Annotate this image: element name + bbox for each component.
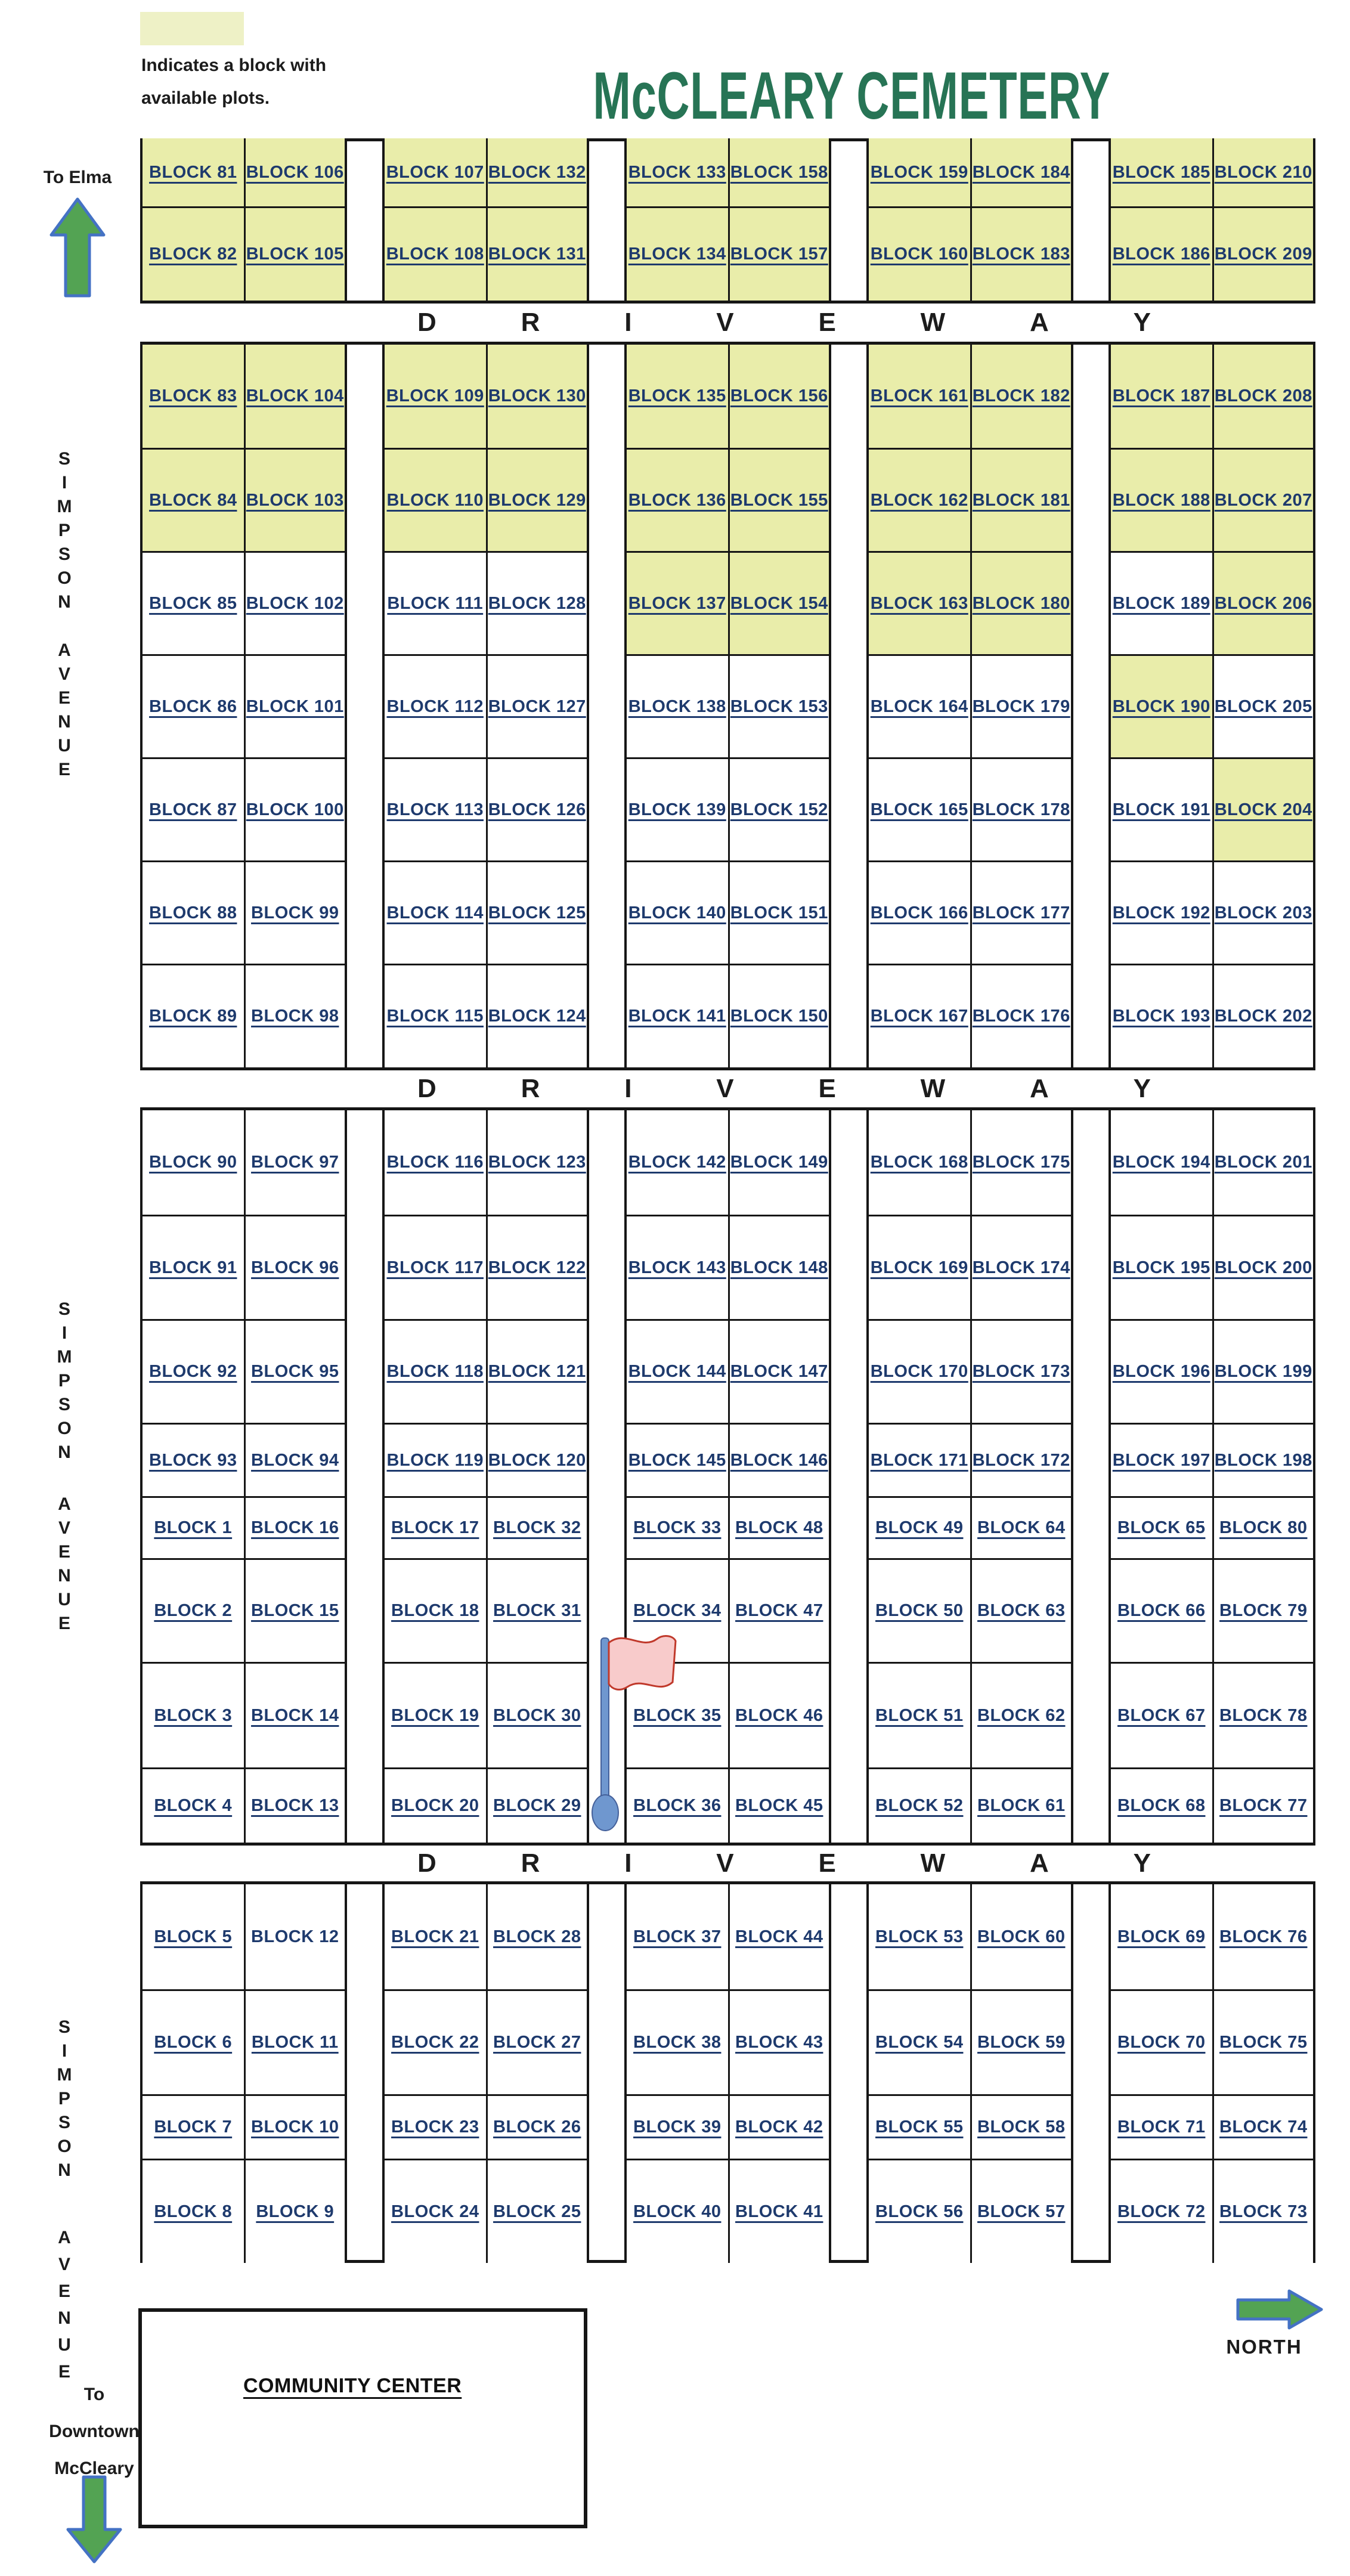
block-cell-55[interactable]: BLOCK 55 bbox=[869, 2094, 970, 2159]
block-cell-64[interactable]: BLOCK 64 bbox=[970, 1496, 1072, 1558]
block-cell-105[interactable]: BLOCK 105 bbox=[244, 206, 345, 301]
block-label-101: BLOCK 101 bbox=[246, 697, 344, 717]
block-cell-122[interactable]: BLOCK 122 bbox=[486, 1215, 587, 1319]
block-cell-38[interactable]: BLOCK 38 bbox=[627, 1989, 728, 2094]
block-cell-148[interactable]: BLOCK 148 bbox=[728, 1215, 829, 1319]
block-cell-190[interactable]: BLOCK 190 bbox=[1111, 654, 1212, 757]
block-label-61: BLOCK 61 bbox=[977, 1796, 1065, 1816]
block-label-180: BLOCK 180 bbox=[973, 594, 1070, 614]
block-cell-18[interactable]: BLOCK 18 bbox=[385, 1558, 486, 1662]
block-cell-193[interactable]: BLOCK 193 bbox=[1111, 964, 1212, 1067]
block-cell-187[interactable]: BLOCK 187 bbox=[1111, 345, 1212, 448]
block-cell-201[interactable]: BLOCK 201 bbox=[1212, 1110, 1314, 1215]
block-cell-90[interactable]: BLOCK 90 bbox=[143, 1110, 244, 1215]
block-cell-113[interactable]: BLOCK 113 bbox=[385, 757, 486, 860]
block-cell-76[interactable]: BLOCK 76 bbox=[1212, 1884, 1314, 1989]
block-cell-195[interactable]: BLOCK 195 bbox=[1111, 1215, 1212, 1319]
block-cell-89[interactable]: BLOCK 89 bbox=[143, 964, 244, 1067]
block-label-152: BLOCK 152 bbox=[730, 800, 828, 820]
block-label-201: BLOCK 201 bbox=[1215, 1153, 1312, 1172]
block-cell-28[interactable]: BLOCK 28 bbox=[486, 1884, 587, 1989]
block-cell-110[interactable]: BLOCK 110 bbox=[385, 448, 486, 551]
block-cell-177[interactable]: BLOCK 177 bbox=[970, 860, 1072, 964]
street-label-simpson-2: SIMPSON bbox=[51, 1298, 78, 1465]
block-cell-163[interactable]: BLOCK 163 bbox=[869, 551, 970, 654]
block-cell-205[interactable]: BLOCK 205 bbox=[1212, 654, 1314, 757]
block-cell-19[interactable]: BLOCK 19 bbox=[385, 1662, 486, 1767]
block-cell-174[interactable]: BLOCK 174 bbox=[970, 1215, 1072, 1319]
street-letter: P bbox=[51, 2087, 78, 2111]
block-cell-134[interactable]: BLOCK 134 bbox=[627, 206, 728, 301]
block-cell-200[interactable]: BLOCK 200 bbox=[1212, 1215, 1314, 1319]
street-letter: S bbox=[51, 1393, 78, 1417]
block-cell-17[interactable]: BLOCK 17 bbox=[385, 1496, 486, 1558]
block-label-82: BLOCK 82 bbox=[149, 244, 237, 264]
block-label-38: BLOCK 38 bbox=[633, 2033, 721, 2052]
block-cell-144[interactable]: BLOCK 144 bbox=[627, 1319, 728, 1423]
block-cell-16[interactable]: BLOCK 16 bbox=[244, 1496, 345, 1558]
block-cell-140[interactable]: BLOCK 140 bbox=[627, 860, 728, 964]
block-cell-143[interactable]: BLOCK 143 bbox=[627, 1215, 728, 1319]
block-cell-46[interactable]: BLOCK 46 bbox=[728, 1662, 829, 1767]
block-label-8: BLOCK 8 bbox=[154, 2202, 232, 2222]
block-label-105: BLOCK 105 bbox=[246, 244, 344, 264]
block-cell-33[interactable]: BLOCK 33 bbox=[627, 1496, 728, 1558]
block-label-17: BLOCK 17 bbox=[391, 1518, 479, 1538]
section-upper-middle-group-2: BLOCK 109BLOCK 130BLOCK 110BLOCK 129BLOC… bbox=[382, 345, 589, 1067]
block-cell-99[interactable]: BLOCK 99 bbox=[244, 860, 345, 964]
block-cell-171[interactable]: BLOCK 171 bbox=[869, 1423, 970, 1496]
block-cell-81[interactable]: BLOCK 81 bbox=[143, 138, 244, 206]
block-cell-145[interactable]: BLOCK 145 bbox=[627, 1423, 728, 1496]
block-cell-11[interactable]: BLOCK 11 bbox=[244, 1989, 345, 2094]
block-cell-30[interactable]: BLOCK 30 bbox=[486, 1662, 587, 1767]
block-cell-97[interactable]: BLOCK 97 bbox=[244, 1110, 345, 1215]
block-cell-94[interactable]: BLOCK 94 bbox=[244, 1423, 345, 1496]
block-cell-68[interactable]: BLOCK 68 bbox=[1111, 1767, 1212, 1843]
block-cell-170[interactable]: BLOCK 170 bbox=[869, 1319, 970, 1423]
block-cell-10[interactable]: BLOCK 10 bbox=[244, 2094, 345, 2159]
block-cell-39[interactable]: BLOCK 39 bbox=[627, 2094, 728, 2159]
block-cell-152[interactable]: BLOCK 152 bbox=[728, 757, 829, 860]
block-label-205: BLOCK 205 bbox=[1215, 697, 1312, 717]
block-label-47: BLOCK 47 bbox=[735, 1601, 823, 1621]
street-letter: N bbox=[51, 1564, 78, 1588]
block-cell-45[interactable]: BLOCK 45 bbox=[728, 1767, 829, 1843]
block-cell-184[interactable]: BLOCK 184 bbox=[970, 138, 1072, 206]
block-cell-209[interactable]: BLOCK 209 bbox=[1212, 206, 1314, 301]
block-cell-141[interactable]: BLOCK 141 bbox=[627, 964, 728, 1067]
block-cell-32[interactable]: BLOCK 32 bbox=[486, 1496, 587, 1558]
block-cell-107[interactable]: BLOCK 107 bbox=[385, 138, 486, 206]
block-label-159: BLOCK 159 bbox=[871, 163, 968, 182]
community-center-box: COMMUNITY CENTER bbox=[138, 2308, 587, 2528]
block-cell-26[interactable]: BLOCK 26 bbox=[486, 2094, 587, 2159]
block-cell-42[interactable]: BLOCK 42 bbox=[728, 2094, 829, 2159]
block-cell-15[interactable]: BLOCK 15 bbox=[244, 1558, 345, 1662]
block-cell-133[interactable]: BLOCK 133 bbox=[627, 138, 728, 206]
block-cell-117[interactable]: BLOCK 117 bbox=[385, 1215, 486, 1319]
street-letter: M bbox=[51, 1345, 78, 1369]
block-cell-98[interactable]: BLOCK 98 bbox=[244, 964, 345, 1067]
block-cell-40[interactable]: BLOCK 40 bbox=[627, 2159, 728, 2263]
block-cell-73[interactable]: BLOCK 73 bbox=[1212, 2159, 1314, 2263]
block-cell-53[interactable]: BLOCK 53 bbox=[869, 1884, 970, 1989]
block-cell-37[interactable]: BLOCK 37 bbox=[627, 1884, 728, 1989]
block-cell-57[interactable]: BLOCK 57 bbox=[970, 2159, 1072, 2263]
block-cell-137[interactable]: BLOCK 137 bbox=[627, 551, 728, 654]
block-cell-111[interactable]: BLOCK 111 bbox=[385, 551, 486, 654]
block-cell-21[interactable]: BLOCK 21 bbox=[385, 1884, 486, 1989]
block-label-140: BLOCK 140 bbox=[628, 903, 726, 923]
block-cell-14[interactable]: BLOCK 14 bbox=[244, 1662, 345, 1767]
block-cell-123[interactable]: BLOCK 123 bbox=[486, 1110, 587, 1215]
block-label-113: BLOCK 113 bbox=[387, 800, 484, 820]
block-cell-6[interactable]: BLOCK 6 bbox=[143, 1989, 244, 2094]
block-cell-153[interactable]: BLOCK 153 bbox=[728, 654, 829, 757]
block-cell-120[interactable]: BLOCK 120 bbox=[486, 1423, 587, 1496]
block-label-174: BLOCK 174 bbox=[973, 1258, 1070, 1278]
block-label-135: BLOCK 135 bbox=[628, 386, 726, 406]
block-cell-78[interactable]: BLOCK 78 bbox=[1212, 1662, 1314, 1767]
block-cell-86[interactable]: BLOCK 86 bbox=[143, 654, 244, 757]
block-cell-130[interactable]: BLOCK 130 bbox=[486, 345, 587, 448]
block-cell-95[interactable]: BLOCK 95 bbox=[244, 1319, 345, 1423]
block-cell-197[interactable]: BLOCK 197 bbox=[1111, 1423, 1212, 1496]
driveway-band-3: DRIVEWAY bbox=[140, 1843, 1315, 1884]
block-cell-166[interactable]: BLOCK 166 bbox=[869, 860, 970, 964]
block-label-108: BLOCK 108 bbox=[386, 244, 484, 264]
block-label-19: BLOCK 19 bbox=[391, 1706, 479, 1726]
block-cell-157[interactable]: BLOCK 157 bbox=[728, 206, 829, 301]
block-cell-196[interactable]: BLOCK 196 bbox=[1111, 1319, 1212, 1423]
block-cell-142[interactable]: BLOCK 142 bbox=[627, 1110, 728, 1215]
block-cell-87[interactable]: BLOCK 87 bbox=[143, 757, 244, 860]
block-label-150: BLOCK 150 bbox=[730, 1007, 828, 1026]
block-label-1: BLOCK 1 bbox=[154, 1518, 232, 1538]
block-cell-51[interactable]: BLOCK 51 bbox=[869, 1662, 970, 1767]
block-cell-88[interactable]: BLOCK 88 bbox=[143, 860, 244, 964]
block-cell-149[interactable]: BLOCK 149 bbox=[728, 1110, 829, 1215]
block-cell-75[interactable]: BLOCK 75 bbox=[1212, 1989, 1314, 2094]
block-cell-180[interactable]: BLOCK 180 bbox=[970, 551, 1072, 654]
block-cell-54[interactable]: BLOCK 54 bbox=[869, 1989, 970, 2094]
block-cell-25[interactable]: BLOCK 25 bbox=[486, 2159, 587, 2263]
block-label-57: BLOCK 57 bbox=[977, 2202, 1065, 2222]
block-cell-183[interactable]: BLOCK 183 bbox=[970, 206, 1072, 301]
block-cell-101[interactable]: BLOCK 101 bbox=[244, 654, 345, 757]
block-cell-173[interactable]: BLOCK 173 bbox=[970, 1319, 1072, 1423]
block-cell-151[interactable]: BLOCK 151 bbox=[728, 860, 829, 964]
driveway-letter: I bbox=[624, 1074, 631, 1104]
block-label-13: BLOCK 13 bbox=[251, 1796, 339, 1816]
block-cell-125[interactable]: BLOCK 125 bbox=[486, 860, 587, 964]
section-upper-middle-group-3: BLOCK 135BLOCK 156BLOCK 136BLOCK 155BLOC… bbox=[624, 345, 831, 1067]
block-cell-165[interactable]: BLOCK 165 bbox=[869, 757, 970, 860]
block-cell-56[interactable]: BLOCK 56 bbox=[869, 2159, 970, 2263]
block-cell-5[interactable]: BLOCK 5 bbox=[143, 1884, 244, 1989]
block-cell-24[interactable]: BLOCK 24 bbox=[385, 2159, 486, 2263]
block-cell-84[interactable]: BLOCK 84 bbox=[143, 448, 244, 551]
block-cell-185[interactable]: BLOCK 185 bbox=[1111, 138, 1212, 206]
block-label-190: BLOCK 190 bbox=[1113, 697, 1210, 717]
block-cell-210[interactable]: BLOCK 210 bbox=[1212, 138, 1314, 206]
block-cell-206[interactable]: BLOCK 206 bbox=[1212, 551, 1314, 654]
block-cell-9[interactable]: BLOCK 9 bbox=[244, 2159, 345, 2263]
block-cell-179[interactable]: BLOCK 179 bbox=[970, 654, 1072, 757]
street-letter: E bbox=[51, 686, 78, 710]
block-cell-72[interactable]: BLOCK 72 bbox=[1111, 2159, 1212, 2263]
block-cell-27[interactable]: BLOCK 27 bbox=[486, 1989, 587, 2094]
community-center-label: COMMUNITY CENTER bbox=[243, 2374, 462, 2398]
block-cell-202[interactable]: BLOCK 202 bbox=[1212, 964, 1314, 1067]
driveway-letter: I bbox=[624, 1849, 631, 1878]
street-letter: N bbox=[51, 2159, 78, 2182]
block-cell-168[interactable]: BLOCK 168 bbox=[869, 1110, 970, 1215]
street-letter: N bbox=[51, 1441, 78, 1465]
block-cell-138[interactable]: BLOCK 138 bbox=[627, 654, 728, 757]
block-cell-146[interactable]: BLOCK 146 bbox=[728, 1423, 829, 1496]
block-cell-100[interactable]: BLOCK 100 bbox=[244, 757, 345, 860]
block-cell-102[interactable]: BLOCK 102 bbox=[244, 551, 345, 654]
block-label-15: BLOCK 15 bbox=[251, 1601, 339, 1621]
block-cell-44[interactable]: BLOCK 44 bbox=[728, 1884, 829, 1989]
block-label-103: BLOCK 103 bbox=[246, 491, 344, 510]
block-label-144: BLOCK 144 bbox=[628, 1362, 726, 1382]
block-label-196: BLOCK 196 bbox=[1113, 1362, 1210, 1382]
block-cell-119[interactable]: BLOCK 119 bbox=[385, 1423, 486, 1496]
block-label-112: BLOCK 112 bbox=[387, 697, 484, 717]
driveway-letter: V bbox=[716, 1849, 733, 1878]
block-cell-172[interactable]: BLOCK 172 bbox=[970, 1423, 1072, 1496]
block-cell-20[interactable]: BLOCK 20 bbox=[385, 1767, 486, 1843]
block-cell-132[interactable]: BLOCK 132 bbox=[486, 138, 587, 206]
block-cell-199[interactable]: BLOCK 199 bbox=[1212, 1319, 1314, 1423]
block-cell-182[interactable]: BLOCK 182 bbox=[970, 345, 1072, 448]
block-cell-158[interactable]: BLOCK 158 bbox=[728, 138, 829, 206]
block-cell-66[interactable]: BLOCK 66 bbox=[1111, 1558, 1212, 1662]
block-cell-80[interactable]: BLOCK 80 bbox=[1212, 1496, 1314, 1558]
block-cell-31[interactable]: BLOCK 31 bbox=[486, 1558, 587, 1662]
block-cell-139[interactable]: BLOCK 139 bbox=[627, 757, 728, 860]
block-label-28: BLOCK 28 bbox=[493, 1927, 581, 1947]
block-cell-161[interactable]: BLOCK 161 bbox=[869, 345, 970, 448]
block-cell-60[interactable]: BLOCK 60 bbox=[970, 1884, 1072, 1989]
block-cell-8[interactable]: BLOCK 8 bbox=[143, 2159, 244, 2263]
block-label-10: BLOCK 10 bbox=[251, 2117, 339, 2137]
block-cell-208[interactable]: BLOCK 208 bbox=[1212, 345, 1314, 448]
block-label-129: BLOCK 129 bbox=[488, 491, 586, 510]
block-label-156: BLOCK 156 bbox=[730, 386, 828, 406]
block-cell-63[interactable]: BLOCK 63 bbox=[970, 1558, 1072, 1662]
block-cell-103[interactable]: BLOCK 103 bbox=[244, 448, 345, 551]
block-cell-71[interactable]: BLOCK 71 bbox=[1111, 2094, 1212, 2159]
block-label-171: BLOCK 171 bbox=[871, 1451, 968, 1470]
block-cell-112[interactable]: BLOCK 112 bbox=[385, 654, 486, 757]
block-cell-189[interactable]: BLOCK 189 bbox=[1111, 551, 1212, 654]
street-letter: S bbox=[51, 543, 78, 566]
section-lower-middle-group-1: BLOCK 90BLOCK 97BLOCK 91BLOCK 96BLOCK 92… bbox=[140, 1110, 347, 1843]
block-cell-85[interactable]: BLOCK 85 bbox=[143, 551, 244, 654]
block-cell-74[interactable]: BLOCK 74 bbox=[1212, 2094, 1314, 2159]
street-letter: I bbox=[51, 471, 78, 495]
block-cell-194[interactable]: BLOCK 194 bbox=[1111, 1110, 1212, 1215]
block-cell-154[interactable]: BLOCK 154 bbox=[728, 551, 829, 654]
block-label-192: BLOCK 192 bbox=[1113, 903, 1210, 923]
block-label-166: BLOCK 166 bbox=[871, 903, 968, 923]
street-letter: I bbox=[51, 1321, 78, 1345]
block-label-199: BLOCK 199 bbox=[1215, 1362, 1312, 1382]
block-cell-2[interactable]: BLOCK 2 bbox=[143, 1558, 244, 1662]
block-label-127: BLOCK 127 bbox=[488, 697, 586, 717]
block-cell-156[interactable]: BLOCK 156 bbox=[728, 345, 829, 448]
block-cell-147[interactable]: BLOCK 147 bbox=[728, 1319, 829, 1423]
block-cell-3[interactable]: BLOCK 3 bbox=[143, 1662, 244, 1767]
block-label-120: BLOCK 120 bbox=[488, 1451, 586, 1470]
block-label-71: BLOCK 71 bbox=[1117, 2117, 1205, 2137]
block-label-125: BLOCK 125 bbox=[488, 903, 586, 923]
street-letter: N bbox=[51, 590, 78, 614]
block-cell-160[interactable]: BLOCK 160 bbox=[869, 206, 970, 301]
block-label-154: BLOCK 154 bbox=[730, 594, 828, 614]
block-cell-58[interactable]: BLOCK 58 bbox=[970, 2094, 1072, 2159]
block-cell-52[interactable]: BLOCK 52 bbox=[869, 1767, 970, 1843]
driveway-letter: R bbox=[521, 1849, 540, 1878]
block-label-60: BLOCK 60 bbox=[977, 1927, 1065, 1947]
street-letter: S bbox=[51, 1298, 78, 1321]
block-cell-115[interactable]: BLOCK 115 bbox=[385, 964, 486, 1067]
block-cell-150[interactable]: BLOCK 150 bbox=[728, 964, 829, 1067]
legend-text: Indicates a block with available plots. bbox=[141, 49, 326, 114]
block-label-42: BLOCK 42 bbox=[735, 2117, 823, 2137]
block-label-138: BLOCK 138 bbox=[628, 697, 726, 717]
block-label-182: BLOCK 182 bbox=[973, 386, 1070, 406]
block-cell-70[interactable]: BLOCK 70 bbox=[1111, 1989, 1212, 2094]
block-label-20: BLOCK 20 bbox=[391, 1796, 479, 1816]
block-cell-188[interactable]: BLOCK 188 bbox=[1111, 448, 1212, 551]
block-cell-61[interactable]: BLOCK 61 bbox=[970, 1767, 1072, 1843]
legend-text-line2: available plots. bbox=[141, 82, 326, 114]
street-label-avenue-5: AVENUE bbox=[51, 2224, 78, 2385]
block-cell-93[interactable]: BLOCK 93 bbox=[143, 1423, 244, 1496]
block-cell-126[interactable]: BLOCK 126 bbox=[486, 757, 587, 860]
block-label-175: BLOCK 175 bbox=[973, 1153, 1070, 1172]
block-cell-12[interactable]: BLOCK 12 bbox=[244, 1884, 345, 1989]
block-cell-164[interactable]: BLOCK 164 bbox=[869, 654, 970, 757]
street-label-avenue-1: AVENUE bbox=[51, 639, 78, 782]
block-label-45: BLOCK 45 bbox=[735, 1796, 823, 1816]
block-cell-96[interactable]: BLOCK 96 bbox=[244, 1215, 345, 1319]
block-cell-207[interactable]: BLOCK 207 bbox=[1212, 448, 1314, 551]
block-cell-159[interactable]: BLOCK 159 bbox=[869, 138, 970, 206]
block-cell-49[interactable]: BLOCK 49 bbox=[869, 1496, 970, 1558]
block-label-133: BLOCK 133 bbox=[628, 163, 726, 182]
block-label-189: BLOCK 189 bbox=[1113, 594, 1210, 614]
block-cell-127[interactable]: BLOCK 127 bbox=[486, 654, 587, 757]
block-label-80: BLOCK 80 bbox=[1219, 1518, 1307, 1538]
block-cell-178[interactable]: BLOCK 178 bbox=[970, 757, 1072, 860]
block-cell-155[interactable]: BLOCK 155 bbox=[728, 448, 829, 551]
block-cell-50[interactable]: BLOCK 50 bbox=[869, 1558, 970, 1662]
block-cell-186[interactable]: BLOCK 186 bbox=[1111, 206, 1212, 301]
block-cell-65[interactable]: BLOCK 65 bbox=[1111, 1496, 1212, 1558]
block-cell-22[interactable]: BLOCK 22 bbox=[385, 1989, 486, 2094]
block-cell-135[interactable]: BLOCK 135 bbox=[627, 345, 728, 448]
block-cell-136[interactable]: BLOCK 136 bbox=[627, 448, 728, 551]
block-label-41: BLOCK 41 bbox=[735, 2202, 823, 2222]
block-cell-43[interactable]: BLOCK 43 bbox=[728, 1989, 829, 2094]
to-downtown-line2: Downtown bbox=[29, 2413, 160, 2450]
block-cell-169[interactable]: BLOCK 169 bbox=[869, 1215, 970, 1319]
block-cell-116[interactable]: BLOCK 116 bbox=[385, 1110, 486, 1215]
block-cell-23[interactable]: BLOCK 23 bbox=[385, 2094, 486, 2159]
driveway-letter: W bbox=[921, 1074, 946, 1104]
block-cell-69[interactable]: BLOCK 69 bbox=[1111, 1884, 1212, 1989]
block-cell-92[interactable]: BLOCK 92 bbox=[143, 1319, 244, 1423]
block-cell-104[interactable]: BLOCK 104 bbox=[244, 345, 345, 448]
block-cell-48[interactable]: BLOCK 48 bbox=[728, 1496, 829, 1558]
block-cell-192[interactable]: BLOCK 192 bbox=[1111, 860, 1212, 964]
block-cell-91[interactable]: BLOCK 91 bbox=[143, 1215, 244, 1319]
block-cell-83[interactable]: BLOCK 83 bbox=[143, 345, 244, 448]
block-label-79: BLOCK 79 bbox=[1219, 1601, 1307, 1621]
section-lower-middle-group-5: BLOCK 194BLOCK 201BLOCK 195BLOCK 200BLOC… bbox=[1109, 1110, 1315, 1843]
section-south-group-3: BLOCK 37BLOCK 44BLOCK 38BLOCK 43BLOCK 39… bbox=[624, 1884, 831, 2263]
block-cell-162[interactable]: BLOCK 162 bbox=[869, 448, 970, 551]
block-label-37: BLOCK 37 bbox=[633, 1927, 721, 1947]
block-cell-47[interactable]: BLOCK 47 bbox=[728, 1558, 829, 1662]
block-cell-191[interactable]: BLOCK 191 bbox=[1111, 757, 1212, 860]
block-label-88: BLOCK 88 bbox=[149, 903, 237, 923]
block-cell-79[interactable]: BLOCK 79 bbox=[1212, 1558, 1314, 1662]
block-label-97: BLOCK 97 bbox=[251, 1153, 339, 1172]
block-cell-62[interactable]: BLOCK 62 bbox=[970, 1662, 1072, 1767]
block-cell-41[interactable]: BLOCK 41 bbox=[728, 2159, 829, 2263]
block-label-184: BLOCK 184 bbox=[973, 163, 1070, 182]
block-cell-128[interactable]: BLOCK 128 bbox=[486, 551, 587, 654]
block-cell-114[interactable]: BLOCK 114 bbox=[385, 860, 486, 964]
block-cell-124[interactable]: BLOCK 124 bbox=[486, 964, 587, 1067]
block-label-115: BLOCK 115 bbox=[387, 1007, 484, 1026]
block-cell-109[interactable]: BLOCK 109 bbox=[385, 345, 486, 448]
block-cell-176[interactable]: BLOCK 176 bbox=[970, 964, 1072, 1067]
block-cell-7[interactable]: BLOCK 7 bbox=[143, 2094, 244, 2159]
block-cell-106[interactable]: BLOCK 106 bbox=[244, 138, 345, 206]
block-cell-118[interactable]: BLOCK 118 bbox=[385, 1319, 486, 1423]
block-cell-13[interactable]: BLOCK 13 bbox=[244, 1767, 345, 1843]
block-cell-198[interactable]: BLOCK 198 bbox=[1212, 1423, 1314, 1496]
block-cell-67[interactable]: BLOCK 67 bbox=[1111, 1662, 1212, 1767]
block-cell-175[interactable]: BLOCK 175 bbox=[970, 1110, 1072, 1215]
block-cell-108[interactable]: BLOCK 108 bbox=[385, 206, 486, 301]
block-cell-131[interactable]: BLOCK 131 bbox=[486, 206, 587, 301]
block-cell-77[interactable]: BLOCK 77 bbox=[1212, 1767, 1314, 1843]
block-cell-1[interactable]: BLOCK 1 bbox=[143, 1496, 244, 1558]
block-cell-204[interactable]: BLOCK 204 bbox=[1212, 757, 1314, 860]
block-cell-4[interactable]: BLOCK 4 bbox=[143, 1767, 244, 1843]
block-cell-82[interactable]: BLOCK 82 bbox=[143, 206, 244, 301]
block-cell-121[interactable]: BLOCK 121 bbox=[486, 1319, 587, 1423]
block-cell-203[interactable]: BLOCK 203 bbox=[1212, 860, 1314, 964]
block-label-176: BLOCK 176 bbox=[973, 1007, 1070, 1026]
block-cell-167[interactable]: BLOCK 167 bbox=[869, 964, 970, 1067]
block-cell-181[interactable]: BLOCK 181 bbox=[970, 448, 1072, 551]
block-cell-129[interactable]: BLOCK 129 bbox=[486, 448, 587, 551]
block-cell-59[interactable]: BLOCK 59 bbox=[970, 1989, 1072, 2094]
block-cell-29[interactable]: BLOCK 29 bbox=[486, 1767, 587, 1843]
block-label-177: BLOCK 177 bbox=[973, 903, 1070, 923]
block-label-6: BLOCK 6 bbox=[154, 2033, 232, 2052]
